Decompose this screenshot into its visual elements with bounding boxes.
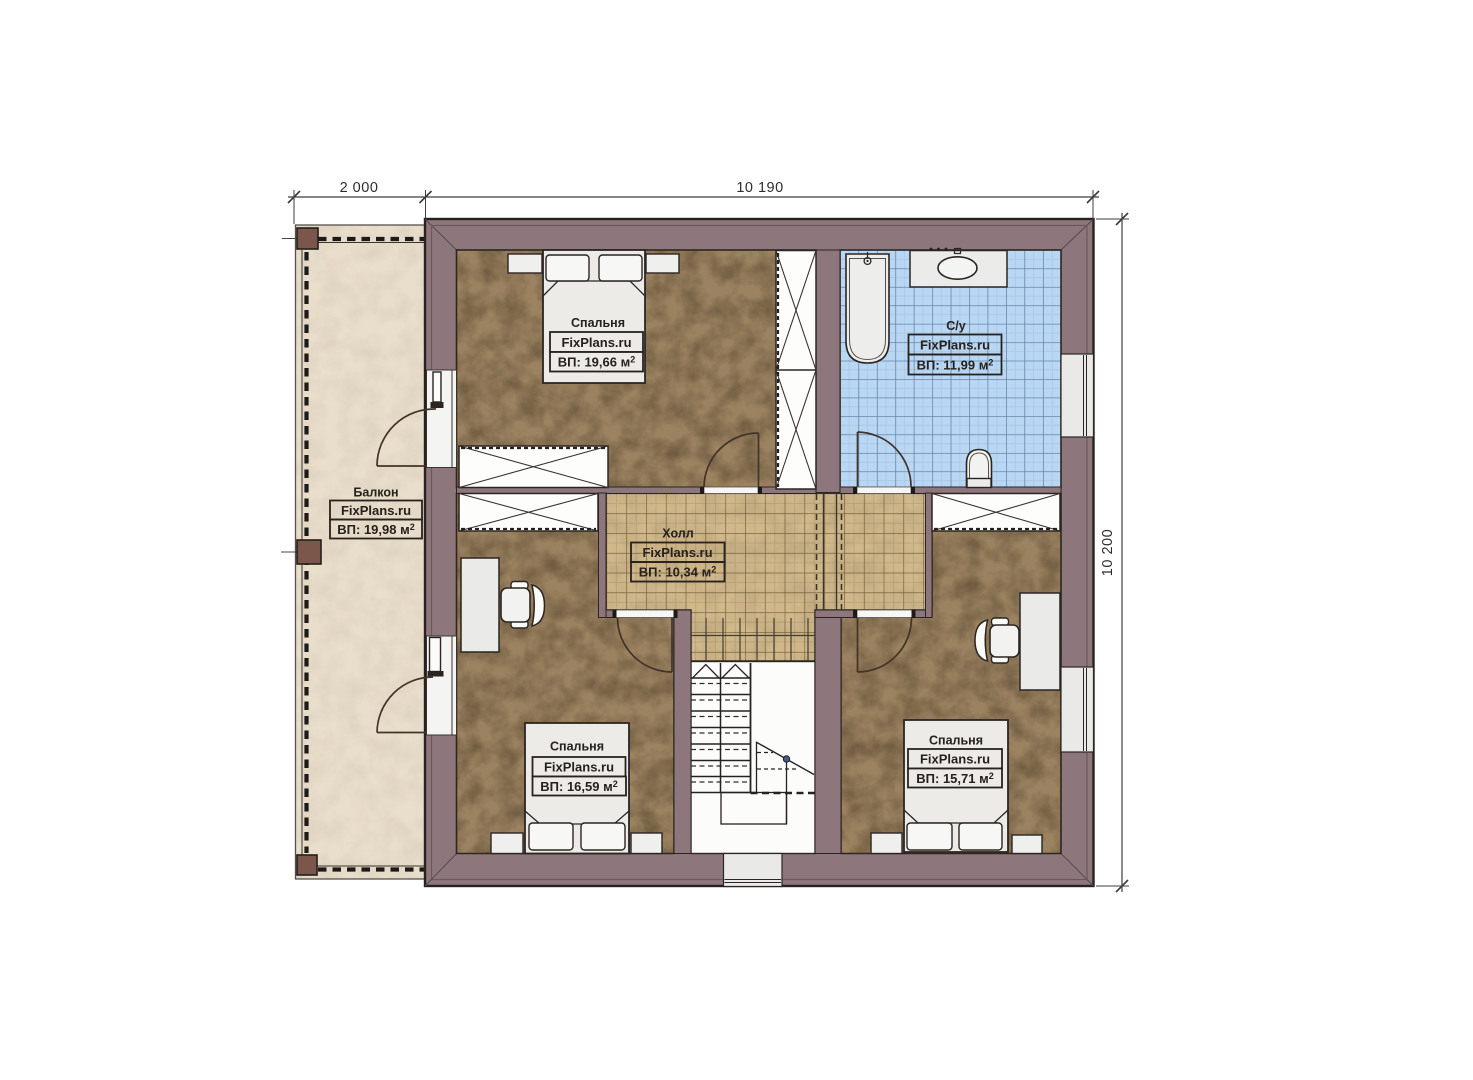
svg-text:Балкон: Балкон bbox=[353, 486, 398, 500]
svg-text:ВП: 10,34 м2: ВП: 10,34 м2 bbox=[639, 565, 716, 580]
svg-text:10 200: 10 200 bbox=[1100, 529, 1116, 576]
svg-text:ВП: 16,59 м2: ВП: 16,59 м2 bbox=[540, 779, 617, 794]
svg-text:Спальня: Спальня bbox=[929, 734, 983, 748]
svg-text:ВП: 15,71 м2: ВП: 15,71 м2 bbox=[916, 771, 993, 786]
svg-text:2 000: 2 000 bbox=[340, 180, 379, 196]
svg-text:Спальня: Спальня bbox=[550, 740, 604, 754]
svg-text:FixPlans.ru: FixPlans.ru bbox=[544, 760, 614, 775]
svg-text:Спальня: Спальня bbox=[571, 316, 625, 330]
svg-text:ВП: 19,98 м2: ВП: 19,98 м2 bbox=[337, 522, 414, 537]
svg-text:ВП: 11,99 м2: ВП: 11,99 м2 bbox=[917, 358, 994, 373]
svg-text:Холл: Холл bbox=[662, 527, 693, 541]
svg-text:ВП: 19,66 м2: ВП: 19,66 м2 bbox=[558, 355, 635, 370]
svg-text:FixPlans.ru: FixPlans.ru bbox=[642, 545, 712, 560]
svg-text:FixPlans.ru: FixPlans.ru bbox=[920, 338, 990, 353]
svg-text:10 190: 10 190 bbox=[736, 180, 783, 196]
svg-text:С/у: С/у bbox=[946, 319, 966, 333]
svg-text:FixPlans.ru: FixPlans.ru bbox=[561, 335, 631, 350]
svg-text:FixPlans.ru: FixPlans.ru bbox=[341, 503, 411, 518]
svg-text:FixPlans.ru: FixPlans.ru bbox=[920, 752, 990, 767]
